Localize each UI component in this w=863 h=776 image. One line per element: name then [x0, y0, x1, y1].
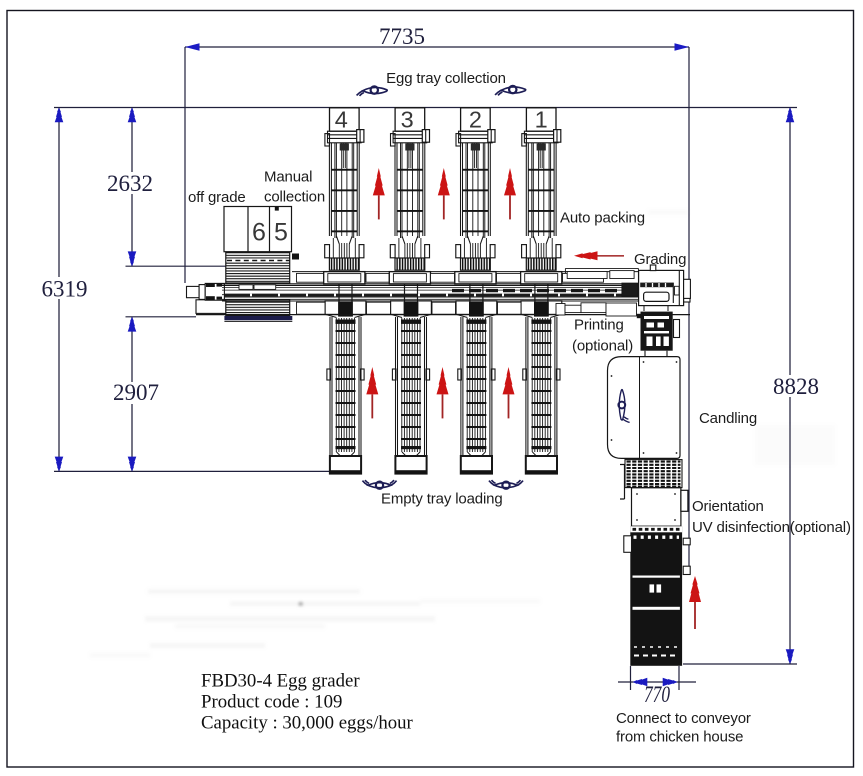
- svg-text:7735: 7735: [379, 24, 425, 49]
- svg-text:3: 3: [401, 107, 414, 133]
- svg-text:Capacity : 30,000 eggs/hour: Capacity : 30,000 eggs/hour: [201, 713, 414, 734]
- svg-text:collection: collection: [264, 189, 325, 206]
- svg-text:5: 5: [274, 219, 288, 247]
- svg-text:1: 1: [535, 107, 548, 133]
- svg-text:(optional): (optional): [572, 338, 633, 355]
- svg-text:Manual: Manual: [264, 169, 312, 186]
- svg-text:Printing: Printing: [574, 317, 624, 334]
- svg-text:2: 2: [469, 107, 482, 133]
- svg-text:off grade: off grade: [188, 189, 246, 206]
- svg-text:8828: 8828: [773, 374, 819, 399]
- svg-text:Egg tray collection: Egg tray collection: [386, 70, 506, 87]
- svg-text:2907: 2907: [113, 380, 159, 405]
- svg-text:Product code : 109: Product code : 109: [201, 692, 342, 713]
- svg-text:UV disinfection(optional): UV disinfection(optional): [692, 519, 851, 536]
- svg-text:from chicken house: from chicken house: [616, 729, 743, 746]
- svg-text:6319: 6319: [42, 277, 88, 302]
- svg-text:Grading: Grading: [634, 251, 686, 268]
- svg-text:Empty tray loading: Empty tray loading: [381, 491, 503, 508]
- svg-text:Orientation: Orientation: [692, 498, 764, 515]
- svg-text:Candling: Candling: [699, 410, 757, 427]
- svg-text:6: 6: [252, 219, 266, 247]
- svg-text:FBD30-4 Egg grader: FBD30-4 Egg grader: [201, 671, 360, 692]
- svg-text:770: 770: [644, 682, 670, 707]
- svg-text:2632: 2632: [107, 171, 153, 196]
- svg-text:Connect to conveyor: Connect to conveyor: [616, 710, 751, 727]
- svg-text:4: 4: [335, 107, 348, 133]
- svg-text:Auto packing: Auto packing: [560, 210, 645, 227]
